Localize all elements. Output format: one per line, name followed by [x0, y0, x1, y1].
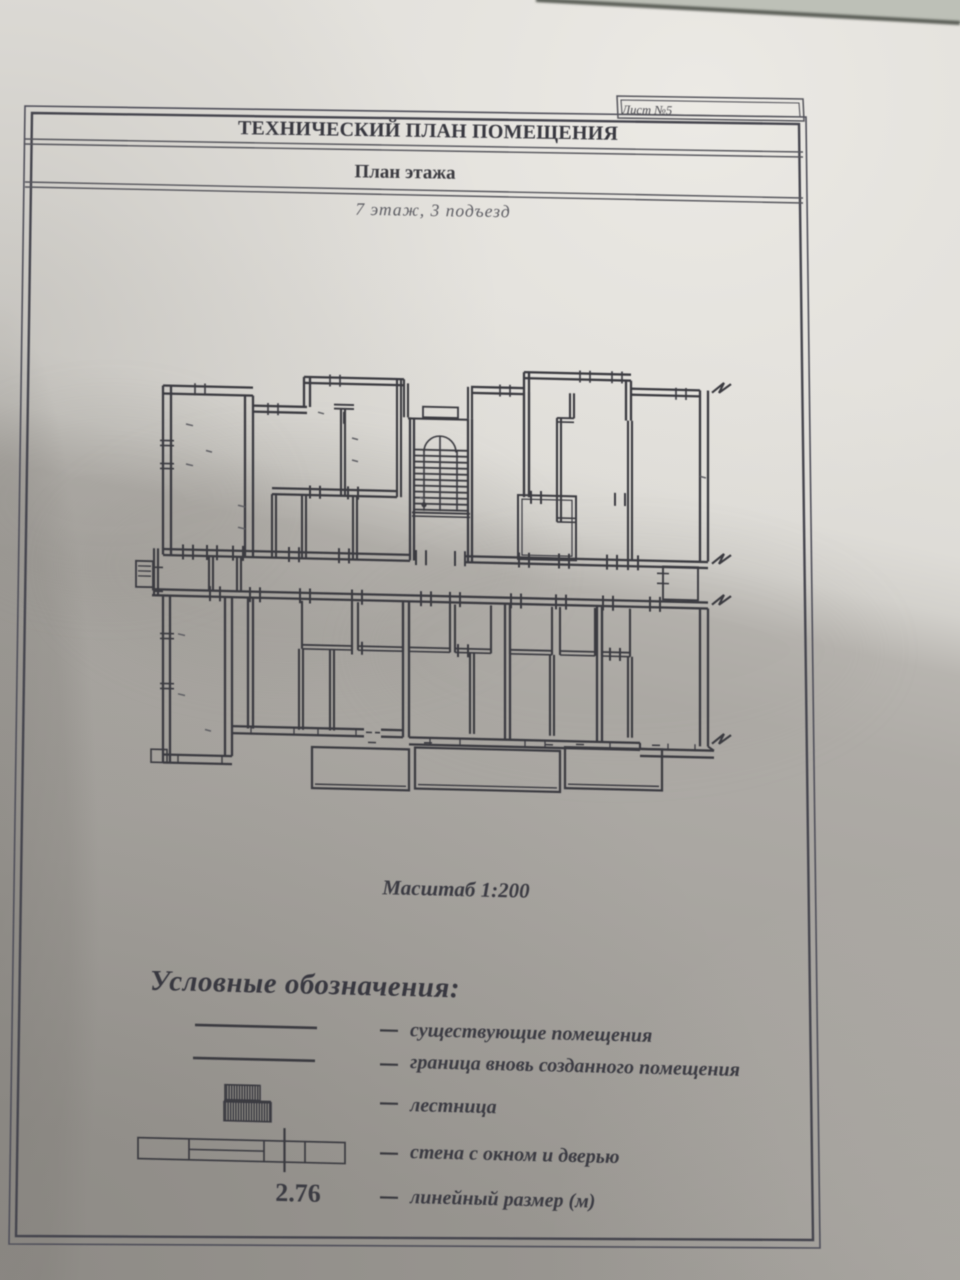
svg-text:План этажа: План этажа	[354, 161, 456, 184]
svg-text:7 этаж, 3 подъезд: 7 этаж, 3 подъезд	[355, 199, 511, 221]
svg-text:2.76: 2.76	[275, 1178, 320, 1208]
svg-text:Лист №5: Лист №5	[621, 103, 673, 118]
svg-text:Масштаб 1:200: Масштаб 1:200	[381, 875, 530, 903]
svg-text:линейный размер (м): линейный размер (м)	[409, 1186, 595, 1212]
svg-text:лестница: лестница	[409, 1094, 497, 1118]
